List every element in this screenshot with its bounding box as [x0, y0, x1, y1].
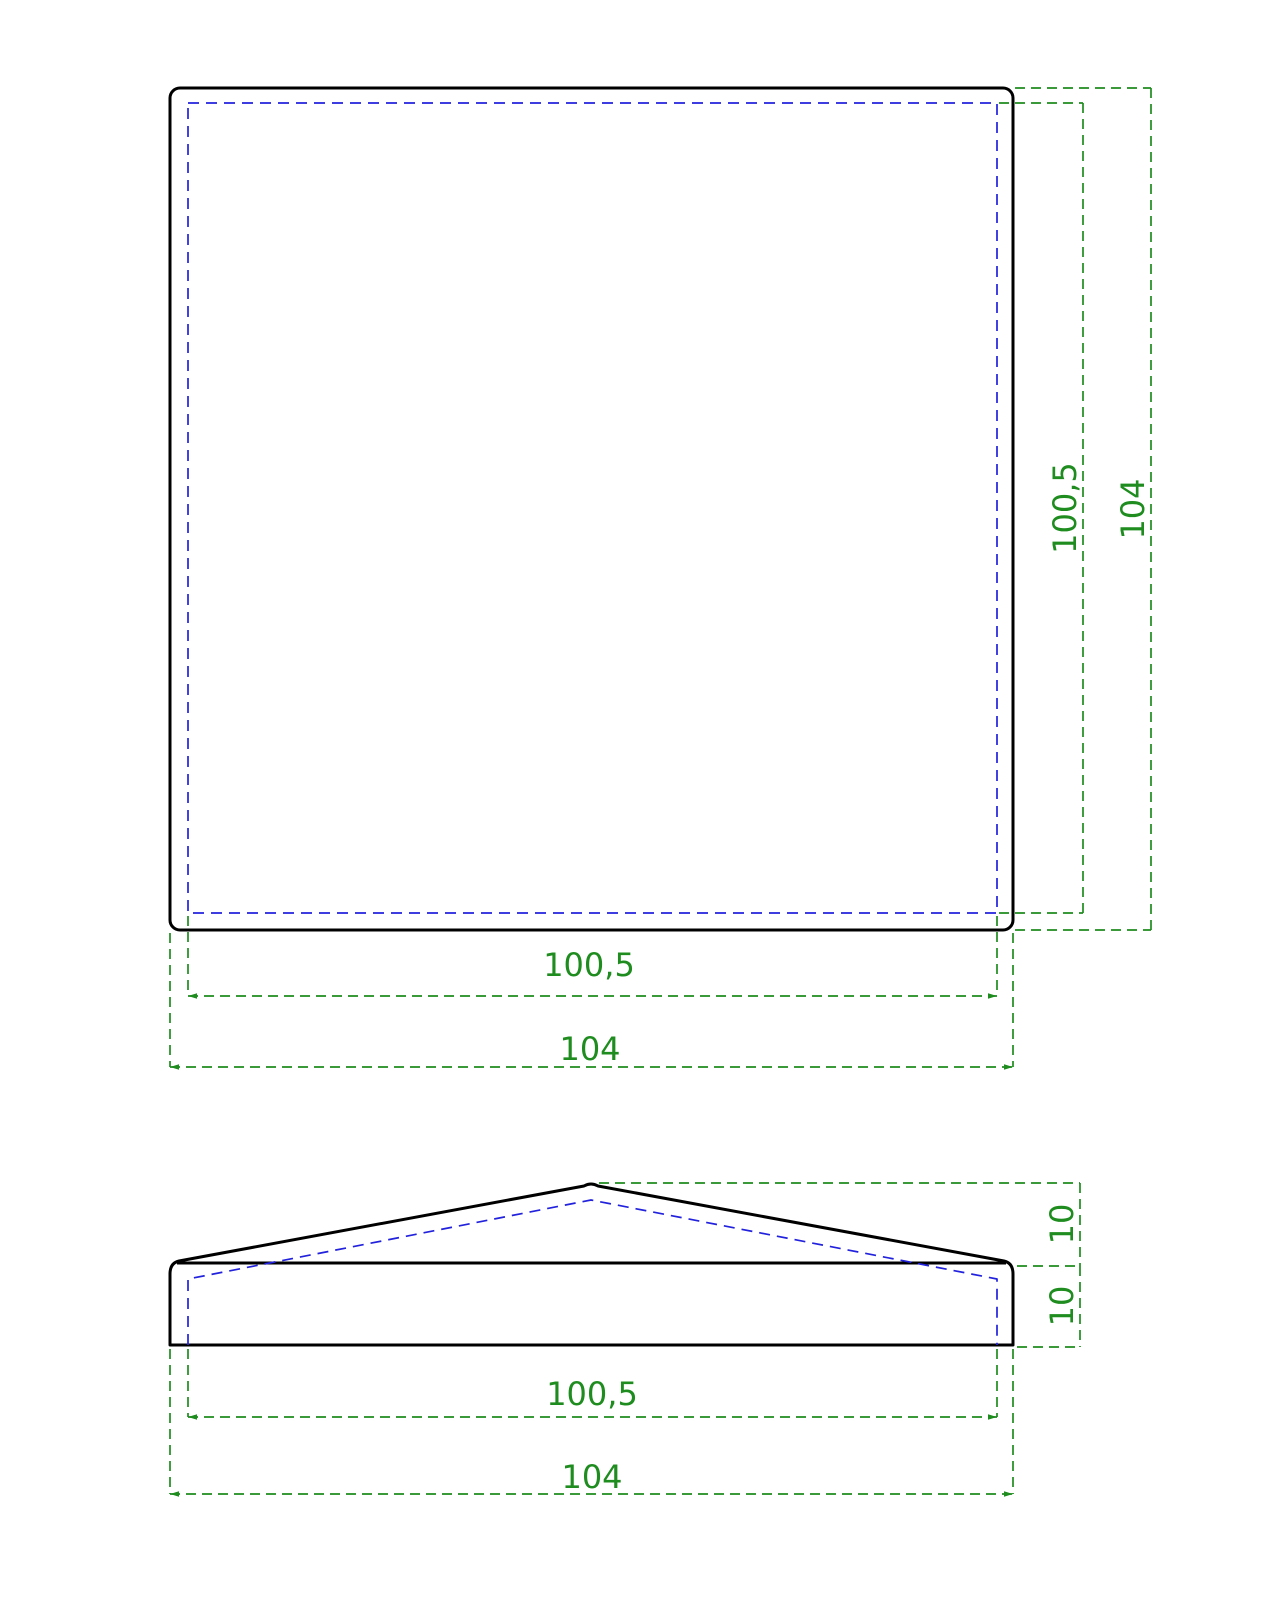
front-view-hidden-profile	[188, 1200, 997, 1345]
top-view-dimension-lines	[170, 88, 1151, 1067]
dim-label-top-width-inner: 100,5	[543, 946, 635, 984]
front-view-dimension-labels: 10 10 100,5 104	[546, 1204, 1081, 1496]
dim-label-front-roof-height: 10	[1043, 1204, 1081, 1245]
dim-label-top-width-outer: 104	[559, 1030, 620, 1068]
dim-label-front-width-outer: 104	[561, 1458, 622, 1496]
front-view: 10 10 100,5 104	[170, 1183, 1081, 1496]
dim-label-front-width-inner: 100,5	[546, 1375, 638, 1413]
top-view: 100,5 104 100,5 104	[170, 88, 1152, 1068]
top-view-outer-edge	[170, 88, 1013, 930]
dim-label-front-base-height: 10	[1043, 1286, 1081, 1327]
dim-label-top-height-inner: 100,5	[1046, 462, 1084, 554]
front-view-visible-edges	[170, 1184, 1013, 1345]
dim-label-top-height-outer: 104	[1114, 478, 1152, 539]
technical-drawing-canvas: 100,5 104 100,5 104	[0, 0, 1280, 1600]
top-view-hidden-edges	[188, 103, 997, 913]
front-view-hidden-edges	[188, 1200, 997, 1345]
top-view-dimension-labels: 100,5 104 100,5 104	[543, 462, 1152, 1068]
top-view-visible-edges	[170, 88, 1013, 930]
drawing-page: 100,5 104 100,5 104	[0, 0, 1280, 1600]
front-view-dimension-lines	[170, 1183, 1080, 1494]
top-view-hidden-inner-edge	[188, 103, 997, 913]
